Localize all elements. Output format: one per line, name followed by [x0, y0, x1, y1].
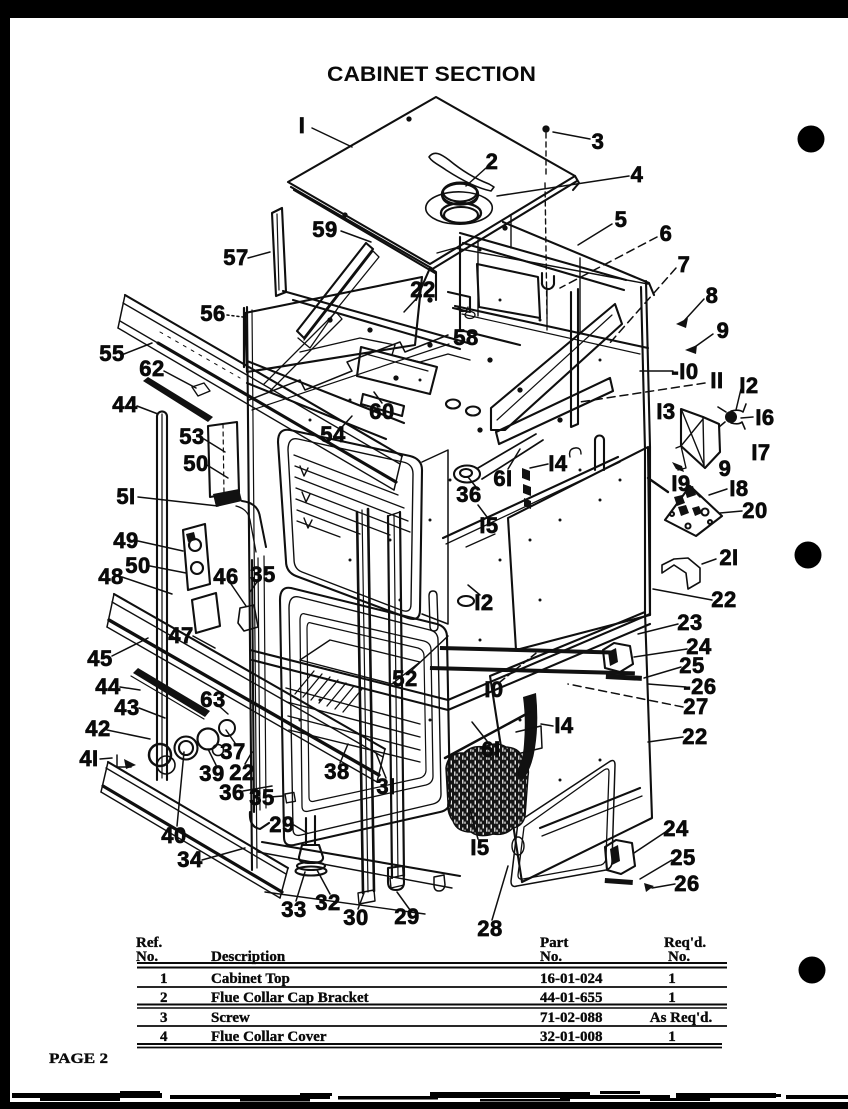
svg-text:26: 26	[674, 871, 699, 896]
svg-text:4I: 4I	[79, 746, 98, 771]
svg-text:52: 52	[392, 666, 417, 691]
svg-text:7: 7	[678, 252, 691, 277]
svg-text:22: 22	[410, 277, 435, 302]
svg-text:46: 46	[213, 564, 238, 589]
svg-text:I2: I2	[739, 373, 758, 398]
svg-text:5I: 5I	[116, 484, 135, 509]
svg-text:3: 3	[160, 1010, 168, 1026]
svg-text:3: 3	[592, 129, 605, 154]
svg-text:57: 57	[223, 245, 248, 270]
svg-text:50: 50	[125, 553, 150, 578]
svg-text:16-01-024: 16-01-024	[540, 971, 603, 987]
svg-text:No.: No.	[136, 949, 158, 965]
svg-text:Cabinet Top: Cabinet Top	[211, 971, 290, 987]
svg-text:43: 43	[114, 695, 139, 720]
svg-text:63: 63	[200, 687, 225, 712]
svg-text:58: 58	[453, 325, 478, 350]
svg-text:35: 35	[250, 562, 275, 587]
svg-text:45: 45	[87, 646, 112, 671]
svg-text:I7: I7	[751, 440, 770, 465]
svg-text:29: 29	[269, 812, 294, 837]
svg-text:As Req'd.: As Req'd.	[650, 1010, 713, 1026]
svg-text:8: 8	[706, 283, 719, 308]
svg-text:30: 30	[343, 905, 368, 930]
svg-text:No.: No.	[668, 949, 690, 965]
svg-text:PAGE 2: PAGE 2	[49, 1051, 108, 1067]
svg-text:59: 59	[312, 217, 337, 242]
svg-text:5: 5	[615, 207, 628, 232]
svg-text:38: 38	[324, 759, 349, 784]
svg-text:1: 1	[160, 971, 168, 987]
svg-text:23: 23	[677, 610, 702, 635]
svg-text:9: 9	[717, 318, 730, 343]
svg-text:47: 47	[168, 623, 193, 648]
svg-text:54: 54	[320, 422, 346, 447]
svg-text:I: I	[299, 113, 306, 138]
svg-text:Screw: Screw	[211, 1010, 250, 1026]
svg-text:I5: I5	[470, 835, 489, 860]
svg-text:71-02-088: 71-02-088	[540, 1010, 603, 1026]
svg-text:33: 33	[281, 897, 306, 922]
svg-text:II: II	[710, 368, 723, 393]
svg-text:29: 29	[394, 904, 419, 929]
svg-text:32-01-008: 32-01-008	[540, 1029, 603, 1045]
svg-text:6I: 6I	[481, 737, 500, 762]
svg-text:44-01-655: 44-01-655	[540, 990, 603, 1006]
svg-text:22: 22	[682, 724, 707, 749]
svg-text:2: 2	[486, 149, 499, 174]
svg-text:24: 24	[663, 816, 689, 841]
svg-text:Flue Collar Cover: Flue Collar Cover	[211, 1029, 327, 1045]
svg-text:53: 53	[179, 424, 204, 449]
svg-text:I5: I5	[479, 513, 498, 538]
svg-text:56: 56	[200, 301, 225, 326]
svg-text:32: 32	[315, 890, 340, 915]
svg-text:62: 62	[139, 356, 164, 381]
svg-text:CABINET SECTION: CABINET SECTION	[327, 63, 536, 86]
svg-text:60: 60	[369, 399, 394, 424]
svg-text:49: 49	[113, 528, 138, 553]
svg-text:6: 6	[660, 221, 673, 246]
svg-text:50: 50	[183, 451, 208, 476]
svg-text:35: 35	[249, 785, 274, 810]
svg-text:I3: I3	[656, 399, 675, 424]
svg-text:4: 4	[160, 1029, 168, 1045]
svg-text:34: 34	[177, 847, 203, 872]
svg-text:I6: I6	[755, 405, 774, 430]
svg-text:I0: I0	[484, 677, 503, 702]
svg-text:I4: I4	[554, 713, 574, 738]
svg-text:42: 42	[85, 716, 110, 741]
svg-text:2: 2	[160, 990, 168, 1006]
svg-text:27: 27	[683, 694, 708, 719]
svg-text:28: 28	[477, 916, 502, 941]
svg-text:4: 4	[631, 162, 644, 187]
svg-text:36: 36	[219, 780, 244, 805]
svg-text:40: 40	[161, 823, 186, 848]
svg-text:25: 25	[670, 845, 695, 870]
svg-text:Description: Description	[211, 949, 286, 965]
svg-text:-I0: -I0	[671, 359, 698, 384]
svg-text:44: 44	[112, 392, 138, 417]
svg-text:No.: No.	[540, 949, 562, 965]
svg-text:22: 22	[711, 587, 736, 612]
svg-text:6I: 6I	[493, 466, 512, 491]
svg-text:1: 1	[668, 1029, 676, 1045]
svg-text:2I: 2I	[719, 545, 738, 570]
svg-text:48: 48	[98, 564, 123, 589]
svg-text:3I: 3I	[376, 774, 395, 799]
svg-text:55: 55	[99, 341, 124, 366]
svg-text:1: 1	[668, 990, 676, 1006]
svg-text:1: 1	[668, 971, 676, 987]
svg-text:Flue Collar Cap Bracket: Flue Collar Cap Bracket	[211, 990, 369, 1006]
svg-text:I4: I4	[548, 451, 568, 476]
svg-text:I2: I2	[474, 590, 493, 615]
svg-text:I9: I9	[671, 471, 690, 496]
svg-text:20: 20	[742, 498, 767, 523]
svg-text:36: 36	[456, 482, 481, 507]
